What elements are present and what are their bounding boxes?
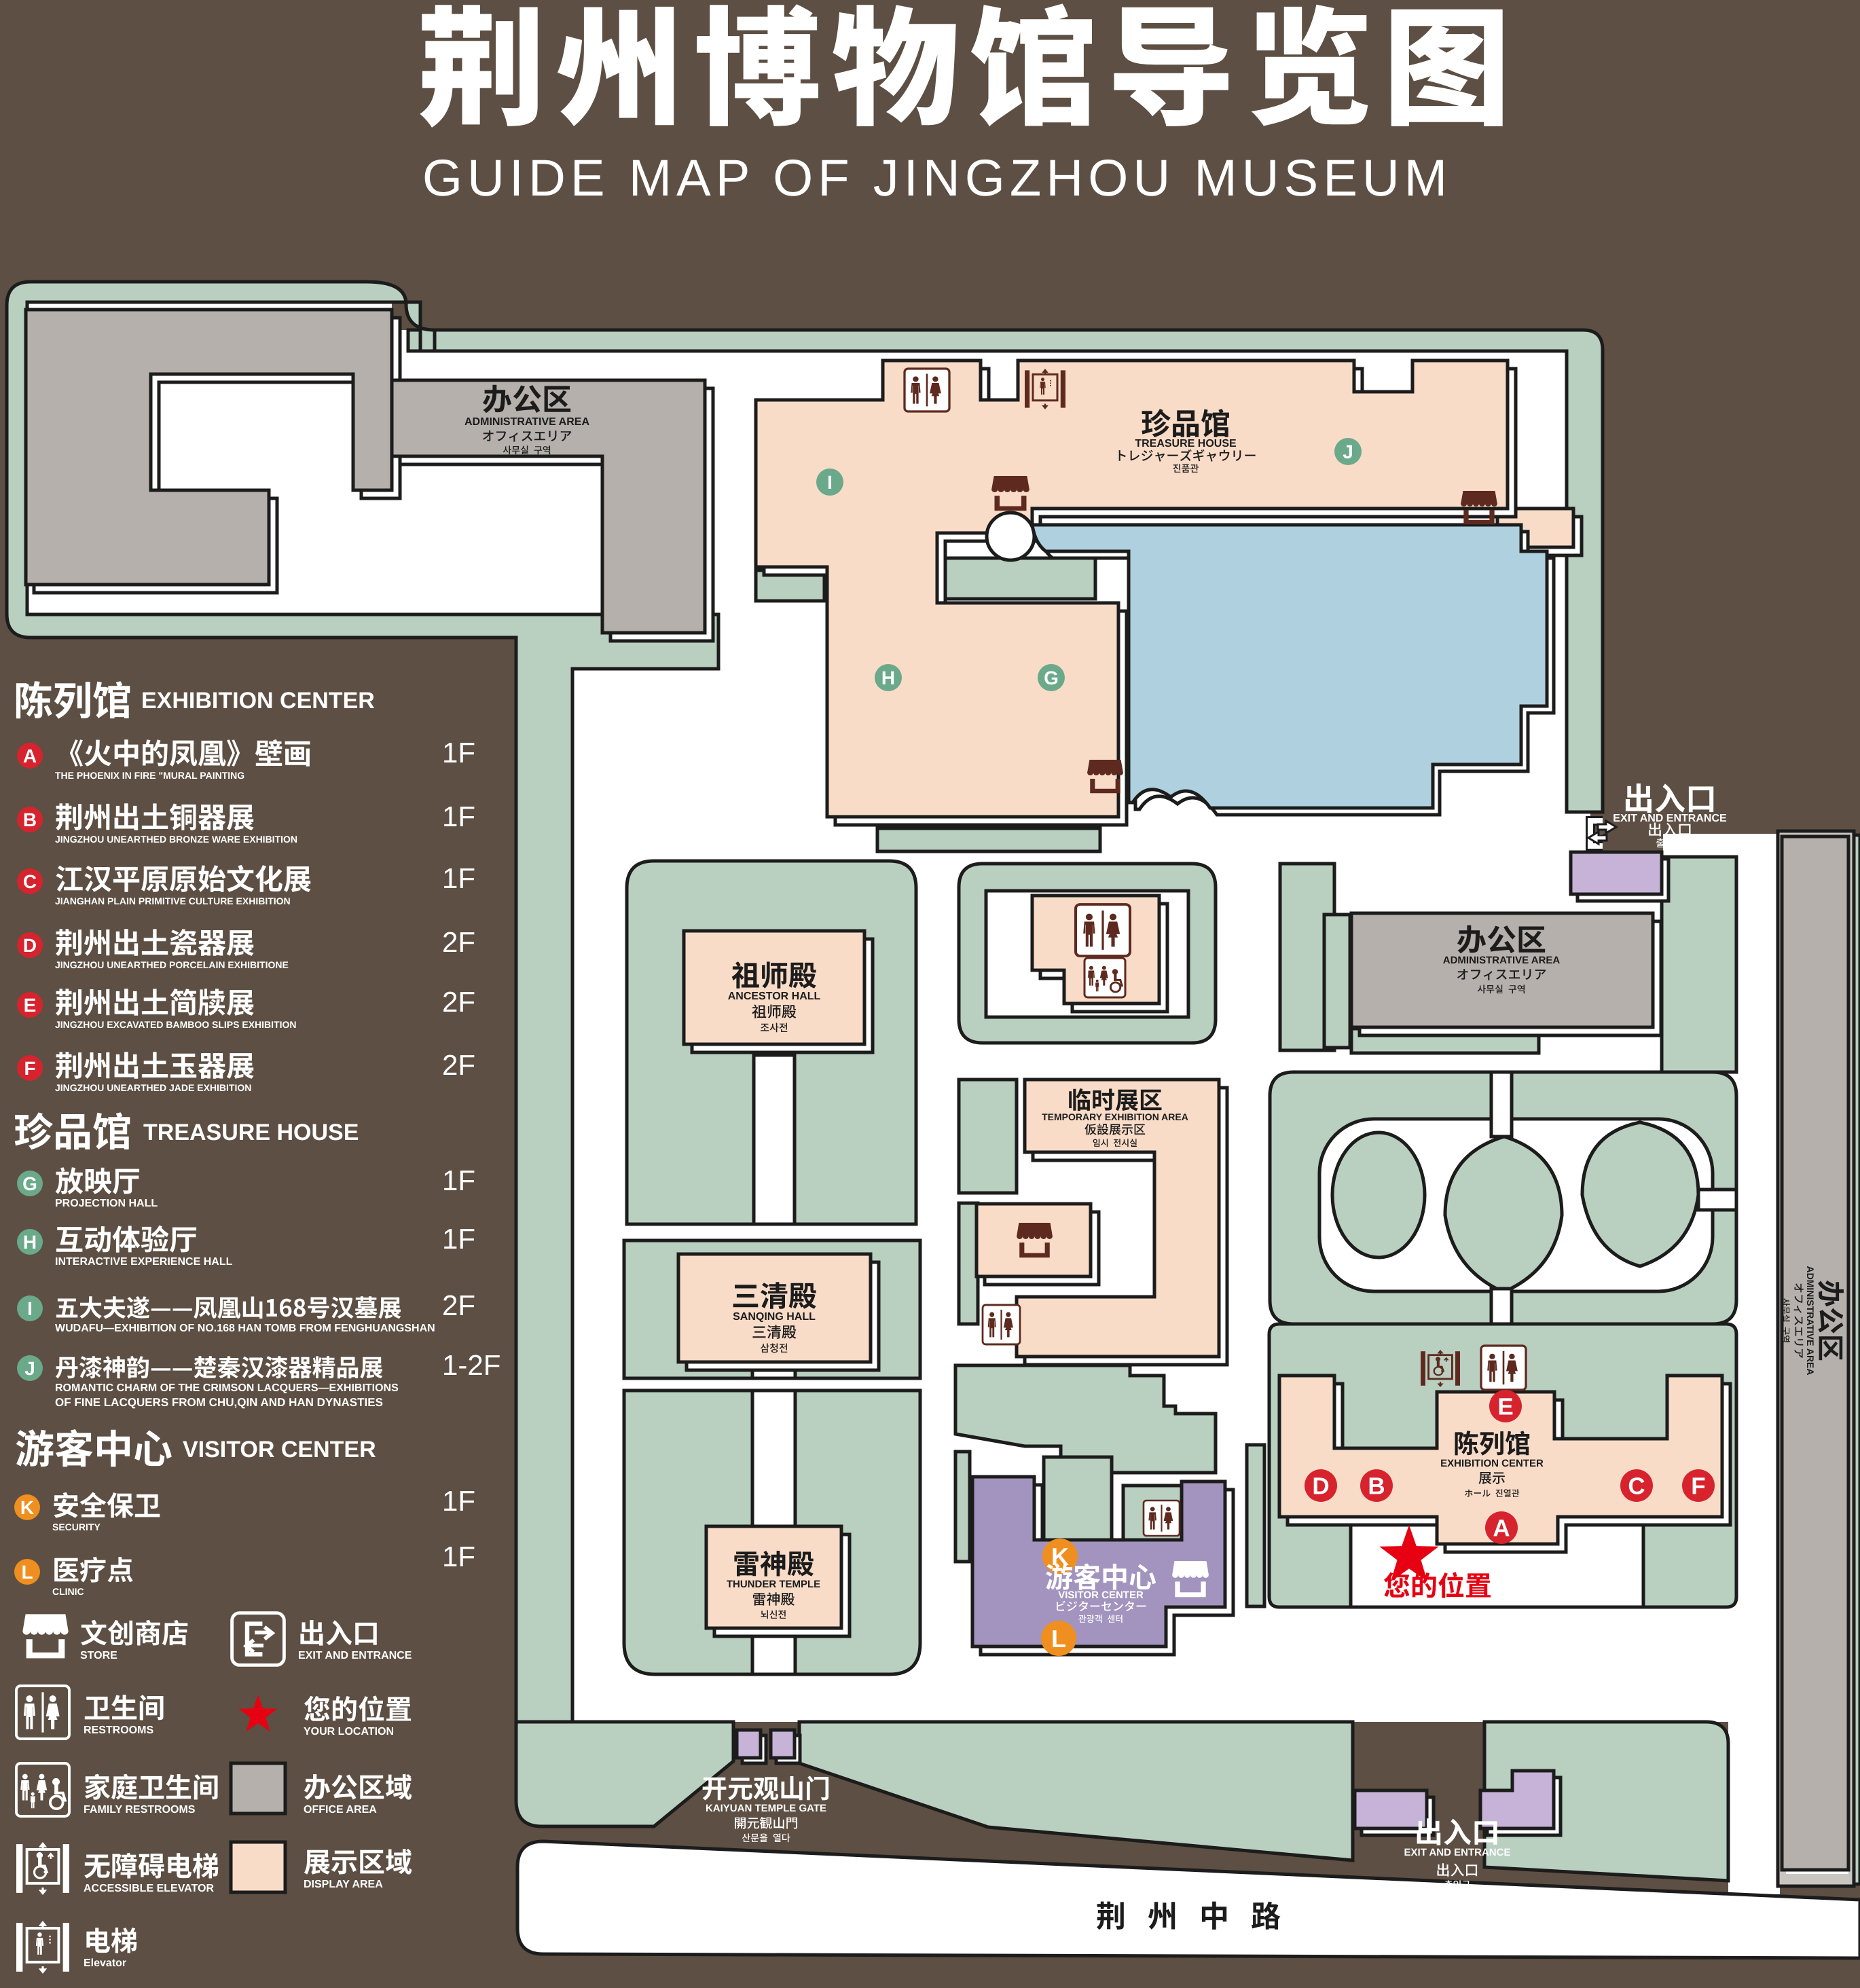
svg-text:EXHIBITION CENTER: EXHIBITION CENTER	[1440, 1458, 1544, 1469]
svg-text:OFFICE AREA: OFFICE AREA	[304, 1804, 377, 1816]
svg-text:1F: 1F	[442, 1223, 475, 1255]
svg-text:E: E	[1497, 1394, 1513, 1420]
svg-text:I: I	[27, 1298, 33, 1319]
svg-text:GUIDE MAP OF JINGZHOU MUSEUM: GUIDE MAP OF JINGZHOU MUSEUM	[422, 149, 1452, 207]
svg-text:2F: 2F	[442, 986, 475, 1018]
svg-text:A: A	[23, 745, 37, 767]
svg-text:EXIT AND ENTRANCE: EXIT AND ENTRANCE	[1613, 813, 1727, 824]
svg-text:RESTROOMS: RESTROOMS	[84, 1725, 153, 1736]
svg-text:G: G	[1044, 667, 1059, 688]
svg-text:2F: 2F	[442, 1049, 475, 1081]
svg-text:VISITOR CENTER: VISITOR CENTER	[183, 1437, 376, 1462]
svg-text:CLINIC: CLINIC	[52, 1586, 84, 1597]
svg-text:1F: 1F	[442, 1485, 475, 1517]
svg-text:THUNDER TEMPLE: THUNDER TEMPLE	[727, 1579, 820, 1590]
svg-text:JIANGHAN PLAIN PRIMITIVE CULTU: JIANGHAN PLAIN PRIMITIVE CULTURE EXHIBIT…	[55, 896, 291, 906]
svg-text:G: G	[22, 1173, 37, 1194]
svg-text:H: H	[881, 667, 895, 688]
svg-text:OF FINE LACQUERS FROM CHU,QIN: OF FINE LACQUERS FROM CHU,QIN AND HAN DY…	[55, 1396, 383, 1409]
svg-text:JINGZHOU UNEARTHED BRONZE WARE: JINGZHOU UNEARTHED BRONZE WARE EXHIBITIO…	[55, 834, 297, 845]
svg-text:JINGZHOU UNEARTHED JADE EXHIBI: JINGZHOU UNEARTHED JADE EXHIBITION	[55, 1082, 251, 1093]
svg-text:SANQING HALL: SANQING HALL	[733, 1311, 816, 1323]
svg-text:INTERACTIVE EXPERIENCE HALL: INTERACTIVE EXPERIENCE HALL	[55, 1256, 233, 1268]
svg-text:JINGZHOU UNEARTHED PORCELAIN E: JINGZHOU UNEARTHED PORCELAIN EXHIBITIONE	[55, 959, 289, 970]
svg-text:1F: 1F	[442, 1164, 475, 1196]
svg-text:STORE: STORE	[80, 1650, 117, 1661]
svg-text:F: F	[1691, 1473, 1705, 1500]
svg-text:J: J	[1343, 441, 1353, 462]
svg-text:ADMINISTRATIVE AREA: ADMINISTRATIVE AREA	[1805, 1266, 1816, 1376]
svg-text:DISPLAY AREA: DISPLAY AREA	[304, 1879, 383, 1890]
svg-text:ADMINISTRATIVE AREA: ADMINISTRATIVE AREA	[1443, 955, 1561, 966]
svg-text:1F: 1F	[442, 1541, 475, 1572]
svg-text:D: D	[1312, 1473, 1329, 1500]
svg-text:SECURITY: SECURITY	[52, 1522, 101, 1532]
svg-text:JINGZHOU EXCAVATED BAMBOO SLIP: JINGZHOU EXCAVATED BAMBOO SLIPS EXHIBITI…	[55, 1019, 296, 1030]
svg-text:EXIT AND ENTRANCE: EXIT AND ENTRANCE	[298, 1650, 412, 1661]
svg-text:1-2F: 1-2F	[442, 1349, 500, 1381]
svg-text:ACCESSIBLE ELEVATOR: ACCESSIBLE ELEVATOR	[84, 1883, 214, 1894]
svg-text:J: J	[24, 1358, 35, 1379]
svg-text:K: K	[20, 1497, 34, 1518]
svg-text:L: L	[1051, 1625, 1066, 1653]
svg-text:ANCESTOR HALL: ANCESTOR HALL	[728, 991, 821, 1002]
svg-text:D: D	[23, 935, 37, 956]
svg-text:ADMINISTRATIVE AREA: ADMINISTRATIVE AREA	[464, 416, 589, 428]
svg-text:C: C	[23, 871, 37, 892]
svg-text:Elevator: Elevator	[84, 1957, 126, 1969]
svg-text:L: L	[21, 1562, 33, 1583]
svg-text:TREASURE HOUSE: TREASURE HOUSE	[143, 1120, 359, 1145]
svg-text:1F: 1F	[442, 737, 475, 769]
svg-text:KAIYUAN TEMPLE GATE: KAIYUAN TEMPLE GATE	[706, 1803, 826, 1814]
svg-text:F: F	[24, 1058, 35, 1079]
svg-text:ROMANTIC CHARM OF THE CRIMSON: ROMANTIC CHARM OF THE CRIMSON LACQUERS—E…	[55, 1382, 399, 1394]
svg-text:B: B	[1368, 1473, 1385, 1500]
svg-text:VISITOR CENTER: VISITOR CENTER	[1058, 1589, 1144, 1601]
svg-text:YOUR LOCATION: YOUR LOCATION	[304, 1726, 394, 1737]
svg-text:I: I	[827, 472, 833, 493]
svg-text:H: H	[23, 1232, 37, 1253]
svg-text:PROJECTION HALL: PROJECTION HALL	[55, 1198, 158, 1209]
svg-text:FAMILY RESTROOMS: FAMILY RESTROOMS	[84, 1804, 196, 1816]
svg-text:1F: 1F	[442, 862, 475, 894]
svg-text:THE PHOENIX IN FIRE "MURAL PAI: THE PHOENIX IN FIRE "MURAL PAINTING	[55, 770, 244, 781]
svg-text:TREASURE HOUSE: TREASURE HOUSE	[1135, 438, 1237, 449]
svg-text:C: C	[1628, 1473, 1645, 1500]
svg-text:2F: 2F	[442, 1289, 475, 1321]
svg-text:EXHIBITION CENTER: EXHIBITION CENTER	[141, 688, 375, 714]
svg-text:A: A	[1493, 1515, 1510, 1542]
svg-text:TEMPORARY EXHIBITION AREA: TEMPORARY EXHIBITION AREA	[1042, 1111, 1188, 1122]
svg-text:WUDAFU—EXHIBITION OF NO.168 HA: WUDAFU—EXHIBITION OF NO.168 HAN TOMB FRO…	[55, 1323, 435, 1334]
svg-text:B: B	[23, 809, 37, 830]
svg-text:EXIT AND ENTRANCE: EXIT AND ENTRANCE	[1404, 1847, 1511, 1858]
svg-text:1F: 1F	[442, 800, 475, 832]
svg-text:2F: 2F	[442, 926, 475, 958]
svg-text:E: E	[24, 995, 37, 1016]
